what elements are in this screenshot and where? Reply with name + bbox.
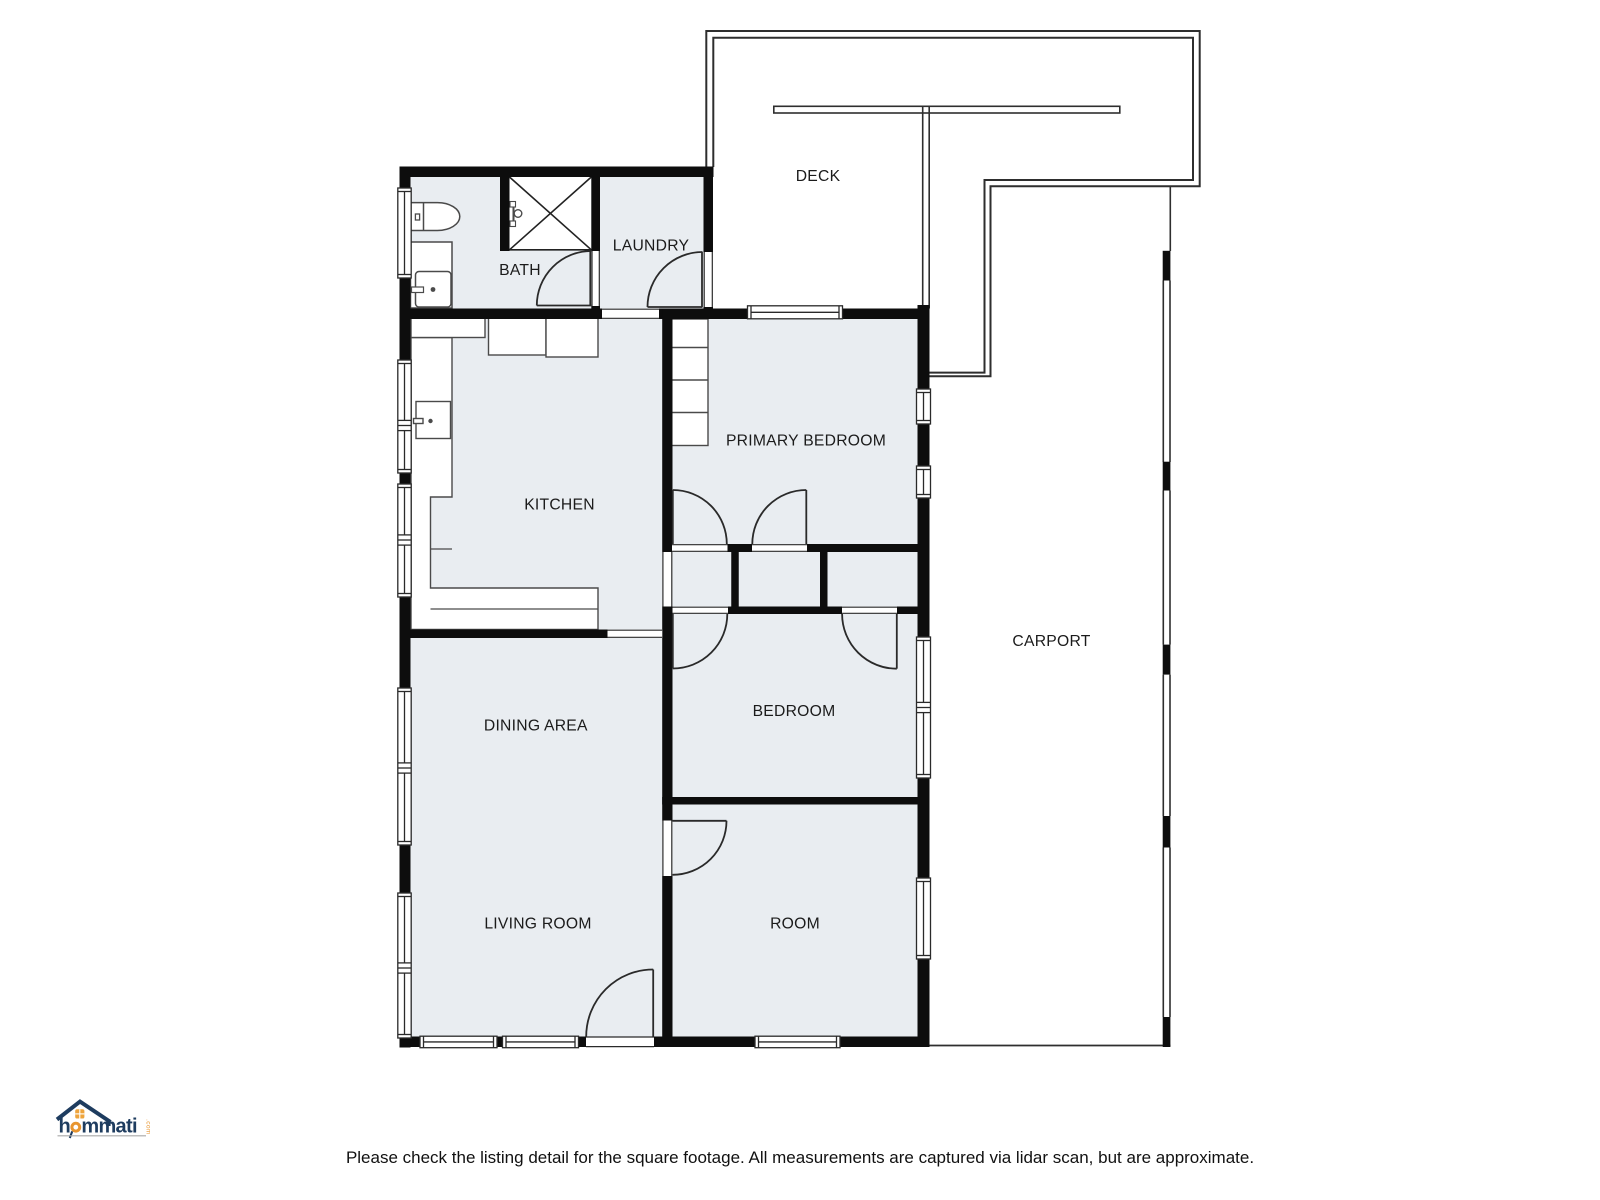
svg-text:Please check the listing detai: Please check the listing detail for the … <box>346 1148 1254 1167</box>
svg-text:DECK: DECK <box>796 168 841 185</box>
svg-text:h: h <box>59 1116 71 1138</box>
svg-text:BEDROOM: BEDROOM <box>753 703 836 720</box>
svg-text:BATH: BATH <box>499 262 541 279</box>
svg-text:KITCHEN: KITCHEN <box>524 497 595 514</box>
svg-text:DINING AREA: DINING AREA <box>484 718 588 735</box>
svg-text:.com: .com <box>145 1119 152 1135</box>
svg-text:CARPORT: CARPORT <box>1012 633 1090 650</box>
svg-text:mmati: mmati <box>81 1116 137 1138</box>
svg-text:LAUNDRY: LAUNDRY <box>613 238 690 255</box>
svg-text:ROOM: ROOM <box>770 916 820 933</box>
svg-text:PRIMARY BEDROOM: PRIMARY BEDROOM <box>726 433 886 450</box>
svg-text:LIVING ROOM: LIVING ROOM <box>484 916 591 933</box>
